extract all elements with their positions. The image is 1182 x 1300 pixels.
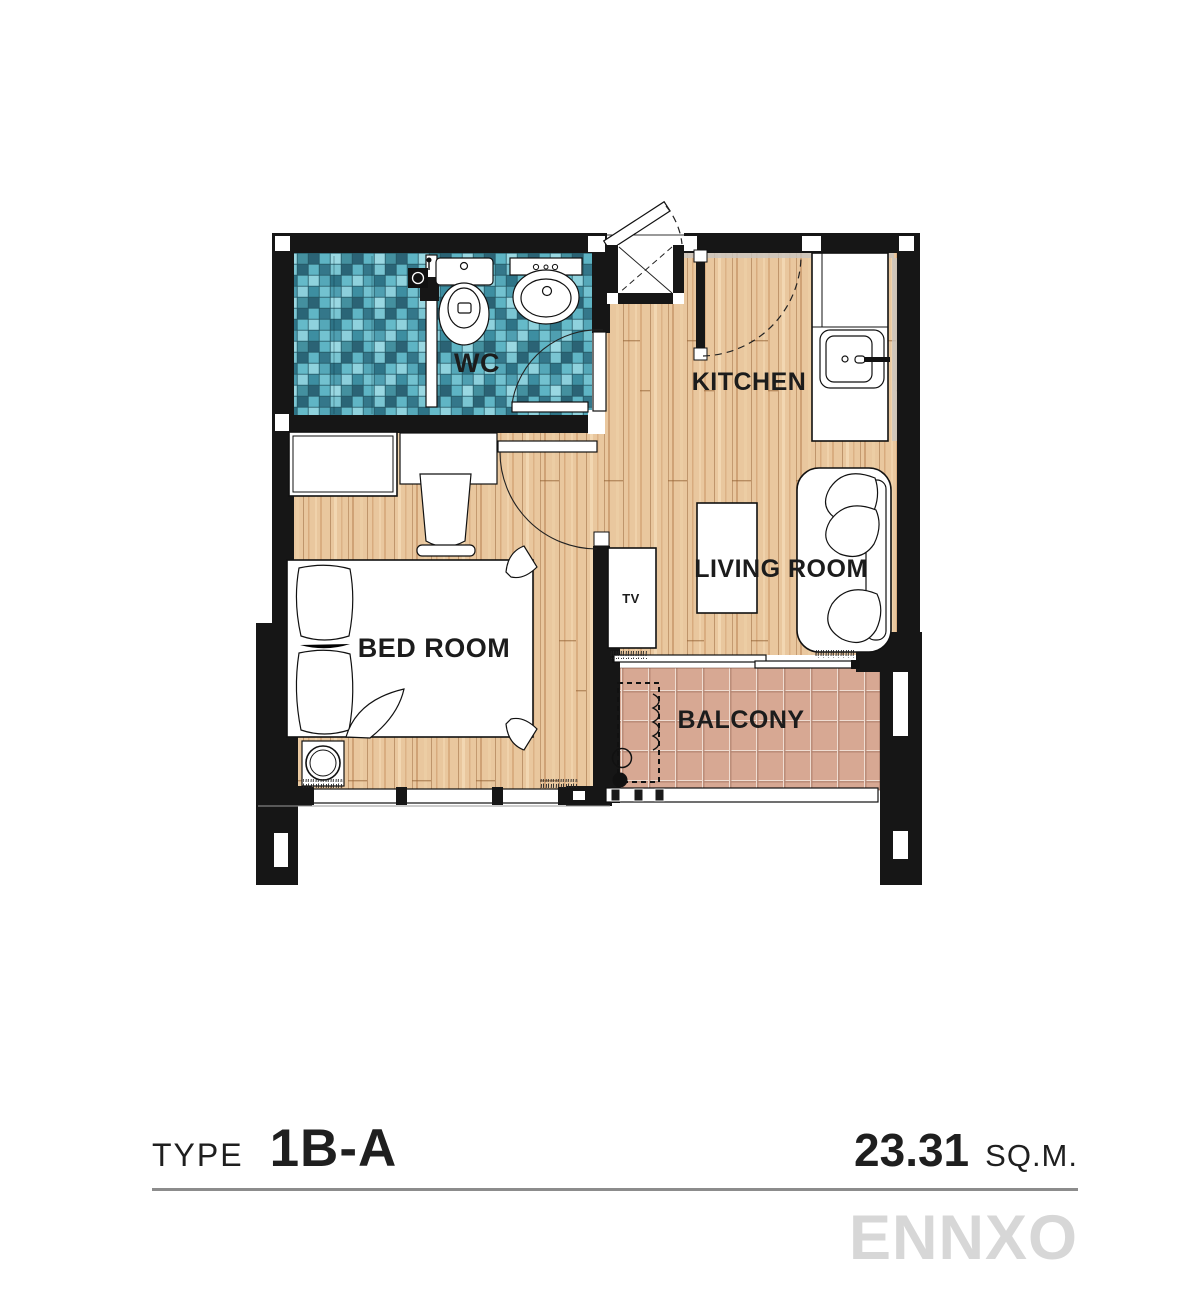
type-value: 1B-A xyxy=(270,1118,398,1179)
room-label-balcony: BALCONY xyxy=(677,706,804,734)
unit-area: 23.31 SQ.M. xyxy=(854,1123,1078,1177)
kitchen-counter xyxy=(812,253,890,441)
bedroom-window xyxy=(258,787,610,806)
area-value: 23.31 xyxy=(854,1123,969,1177)
room-label-living: LIVING ROOM xyxy=(694,555,868,583)
watermark-logo: ENNXO xyxy=(849,1202,1078,1274)
faucet-icon xyxy=(864,357,890,362)
caption: TYPE 1B-A 23.31 SQ.M. xyxy=(152,1118,1078,1179)
wardrobe xyxy=(289,432,397,496)
pillow xyxy=(296,650,352,734)
area-unit: SQ.M. xyxy=(985,1138,1078,1174)
room-label-bedroom: BED ROOM xyxy=(358,633,511,663)
bathroom-sink xyxy=(510,258,582,324)
balcony-railing xyxy=(606,788,878,802)
floor-plan: TV xyxy=(0,0,1182,1300)
caption-divider xyxy=(152,1188,1078,1191)
pillow xyxy=(296,565,352,640)
type-label: TYPE xyxy=(152,1137,244,1174)
tv-console: TV xyxy=(608,548,656,648)
service-shaft xyxy=(607,245,684,304)
room-label-kitchen: KITCHEN xyxy=(692,368,807,396)
room-label-wc: WC xyxy=(454,348,500,378)
unit-type: TYPE 1B-A xyxy=(152,1118,397,1179)
tv-label: TV xyxy=(622,591,640,606)
entrance-door xyxy=(604,202,684,251)
toilet xyxy=(436,258,493,345)
floorplan-page: TV xyxy=(0,0,1182,1300)
floor-drain-icon xyxy=(613,773,628,788)
